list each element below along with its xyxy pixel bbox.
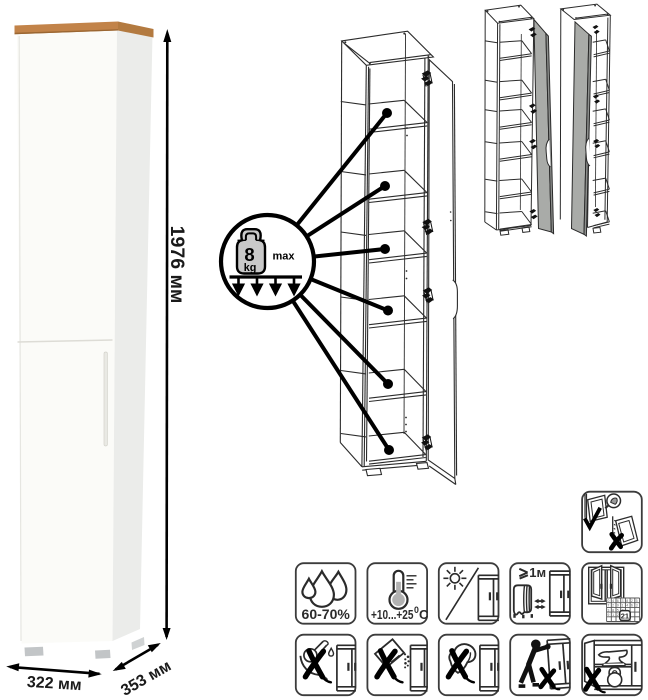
svg-text:4: 4 [612, 599, 614, 603]
svg-text:9: 9 [607, 613, 609, 617]
svg-text:3: 3 [622, 599, 624, 603]
svg-text:8: 8 [612, 608, 614, 612]
svg-text:7: 7 [607, 604, 609, 608]
svg-text:3: 3 [636, 604, 638, 608]
svg-text:60-70%: 60-70% [302, 606, 351, 622]
svg-text:5: 5 [617, 608, 619, 612]
svg-text:5: 5 [636, 599, 638, 603]
svg-text:0: 0 [607, 599, 609, 603]
svg-text:1м: 1м [529, 565, 546, 580]
svg-text:322 мм: 322 мм [26, 674, 82, 694]
svg-text:8: 8 [626, 599, 628, 603]
svg-text:2: 2 [617, 613, 619, 617]
svg-text:+10...+25: +10...+25 [371, 607, 414, 622]
svg-text:6: 6 [631, 604, 633, 608]
svg-text:6: 6 [617, 599, 619, 603]
svg-text:1: 1 [612, 613, 614, 617]
svg-text:2: 2 [631, 599, 633, 603]
svg-text:1: 1 [622, 604, 624, 608]
svg-text:4: 4 [626, 604, 628, 608]
svg-text:C: C [419, 607, 429, 622]
svg-text:9: 9 [617, 604, 619, 608]
svg-text:2: 2 [612, 604, 614, 608]
svg-text:3: 3 [607, 608, 609, 612]
svg-text:kg: kg [244, 262, 257, 274]
svg-text:max: max [273, 251, 296, 263]
svg-text:1976 мм: 1976 мм [166, 226, 188, 304]
svg-text:21: 21 [621, 611, 629, 620]
